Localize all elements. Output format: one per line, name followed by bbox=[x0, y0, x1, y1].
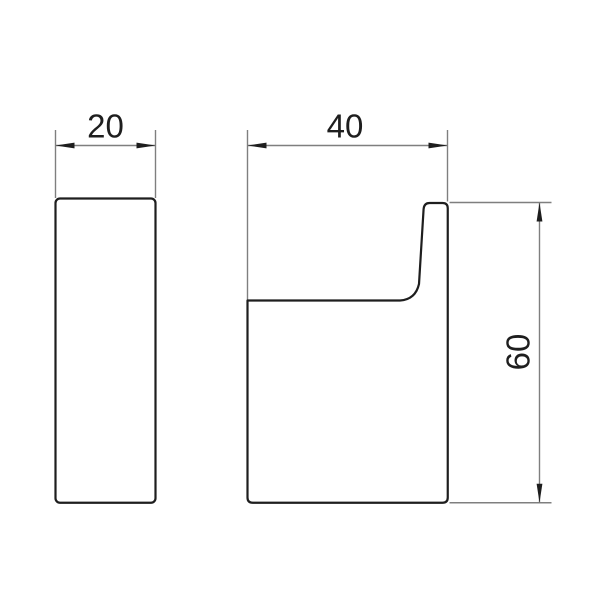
arrow-front-width-left bbox=[56, 143, 75, 149]
side-view-outline bbox=[248, 203, 448, 503]
front-view-outline bbox=[56, 199, 156, 503]
dim-label-side-depth: 40 bbox=[327, 108, 364, 145]
arrow-side-depth-left bbox=[248, 143, 267, 149]
arrow-side-height-top bbox=[537, 203, 543, 222]
technical-drawing-page: 20 40 60 bbox=[0, 0, 600, 600]
arrow-side-depth-right bbox=[429, 143, 448, 149]
dim-label-side-height: 60 bbox=[500, 334, 537, 371]
object-outlines bbox=[56, 199, 448, 503]
arrow-front-width-right bbox=[137, 143, 156, 149]
dim-label-front-width: 20 bbox=[87, 108, 124, 145]
arrow-side-height-bottom bbox=[537, 484, 543, 503]
technical-drawing-canvas: 20 40 60 bbox=[0, 0, 600, 600]
